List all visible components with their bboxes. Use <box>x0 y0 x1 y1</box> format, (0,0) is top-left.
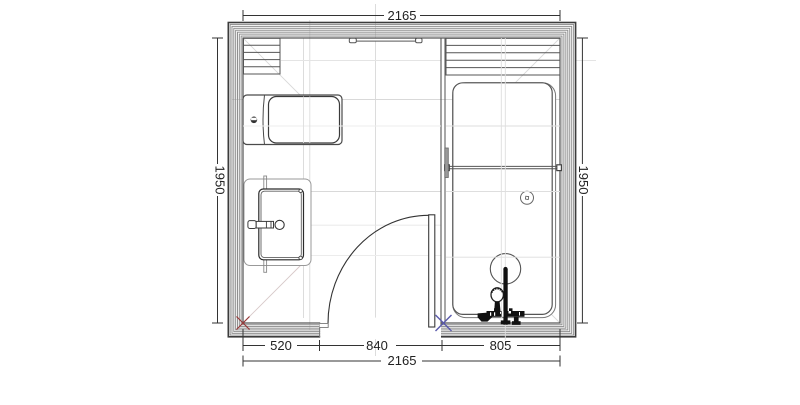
svg-text:1950: 1950 <box>576 166 591 195</box>
svg-text:805: 805 <box>490 338 512 353</box>
svg-text:2165: 2165 <box>388 8 417 23</box>
svg-text:1950: 1950 <box>212 166 227 195</box>
svg-text:2165: 2165 <box>388 353 417 368</box>
svg-text:840: 840 <box>366 338 388 353</box>
svg-text:520: 520 <box>270 338 292 353</box>
